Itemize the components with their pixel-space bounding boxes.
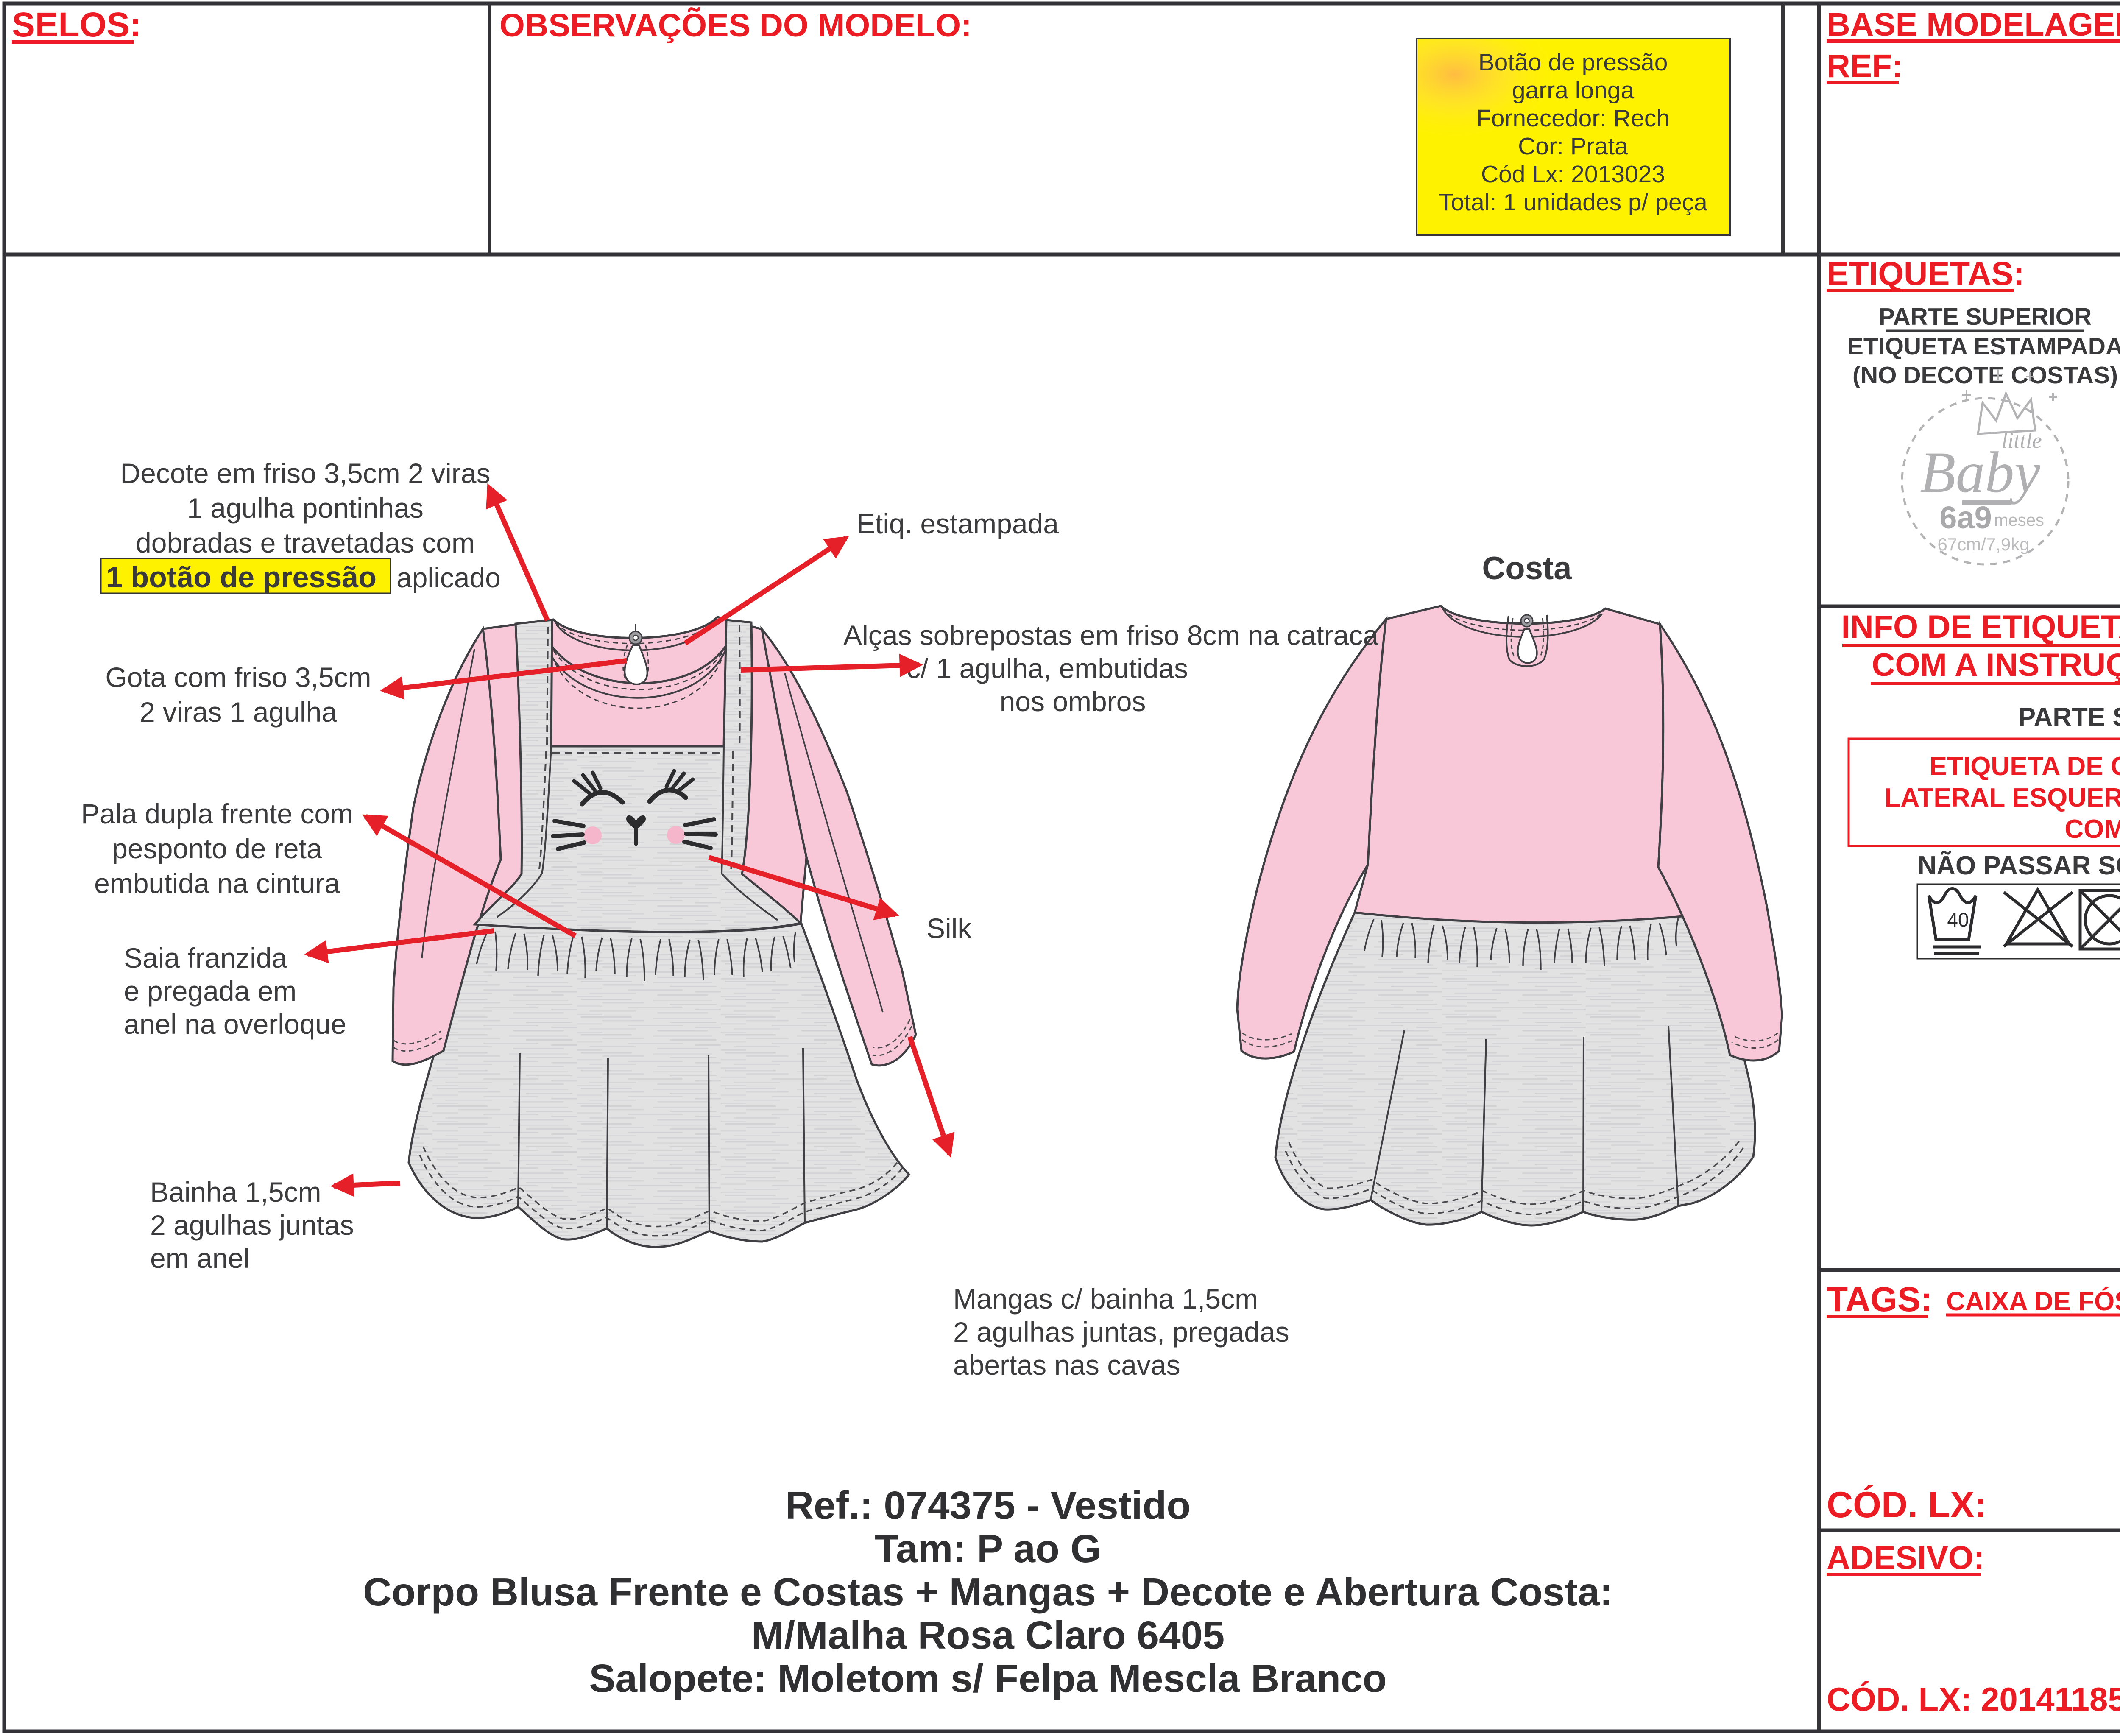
svg-text:Gota com friso 3,5cm: Gota com friso 3,5cm: [105, 661, 371, 693]
svg-text:em anel: em anel: [150, 1242, 250, 1274]
svg-text:67cm/7,9kg: 67cm/7,9kg: [1937, 534, 2029, 554]
svg-text:Decote em friso 3,5cm 2 viras: Decote em friso 3,5cm 2 viras: [120, 458, 491, 489]
svg-text:40: 40: [1947, 909, 1969, 931]
svg-text:NÃO PASSAR SOBRE A ESTAMPA: NÃO PASSAR SOBRE A ESTAMPA: [1917, 851, 2120, 880]
svg-text:CÓD. LX: 20141185: CÓD. LX: 20141185: [1827, 1680, 2120, 1718]
svg-text:Ref.: 074375 - Vestido: Ref.: 074375 - Vestido: [785, 1483, 1191, 1527]
svg-text:Bainha 1,5cm: Bainha 1,5cm: [150, 1176, 321, 1208]
svg-text:ETIQUETAS:: ETIQUETAS:: [1827, 255, 2025, 292]
svg-text:1 agulha pontinhas: 1 agulha pontinhas: [187, 492, 424, 524]
svg-text:2 agulhas juntas, pregadas: 2 agulhas juntas, pregadas: [953, 1316, 1289, 1348]
svg-text:SELOS:: SELOS:: [12, 6, 141, 44]
svg-text:aplicado: aplicado: [396, 562, 501, 593]
svg-text:PARTE SUPERIOR: PARTE SUPERIOR: [1879, 303, 2092, 330]
svg-text:PARTE SUPERIOR: PARTE SUPERIOR: [2018, 703, 2120, 732]
svg-text:meses: meses: [1994, 511, 2044, 530]
svg-text:Salopete: Moletom s/ Felpa Mes: Salopete: Moletom s/ Felpa Mescla Branco: [589, 1656, 1386, 1700]
svg-text:(NO DECOTE COSTAS): (NO DECOTE COSTAS): [1852, 362, 2118, 389]
svg-text:Costa: Costa: [1482, 550, 1572, 586]
svg-text:Saia franzida: Saia franzida: [124, 942, 287, 974]
svg-text:Cód Lx: 2013023: Cód Lx: 2013023: [1481, 161, 1665, 188]
svg-text:INFO DE ETIQUETA DE COMPOSIÇÃO: INFO DE ETIQUETA DE COMPOSIÇÃO: [1841, 609, 2120, 645]
svg-text:Silk: Silk: [926, 913, 972, 944]
svg-text:Etiq. estampada: Etiq. estampada: [856, 508, 1059, 539]
svg-text:OBSERVAÇÕES DO MODELO:: OBSERVAÇÕES DO MODELO:: [499, 7, 972, 44]
svg-text:Fornecedor: Rech: Fornecedor: Rech: [1476, 105, 1670, 132]
svg-text:M/Malha Rosa Claro 6405: M/Malha Rosa Claro 6405: [751, 1613, 1225, 1657]
svg-text:Total: 1 unidades p/ peça: Total: 1 unidades p/ peça: [1439, 189, 1707, 216]
svg-text:Pala dupla frente com: Pala dupla frente com: [81, 798, 353, 829]
svg-text:Alças sobrepostas em friso 8cm: Alças sobrepostas em friso 8cm na catrac…: [843, 620, 1378, 651]
svg-text:6a9: 6a9: [1939, 500, 1992, 535]
svg-text:2 agulhas juntas: 2 agulhas juntas: [150, 1209, 354, 1241]
svg-text:abertas nas cavas: abertas nas cavas: [953, 1349, 1180, 1381]
svg-text:LATERAL ESQUERDA DE QUEM VESTE: LATERAL ESQUERDA DE QUEM VESTE: [1885, 783, 2120, 812]
svg-text:CÓD. LX:: CÓD. LX:: [1827, 1485, 1986, 1525]
svg-text:dobradas e travetadas com: dobradas e travetadas com: [136, 527, 475, 558]
svg-text:c/ 1 agulha, embutidas: c/ 1 agulha, embutidas: [907, 653, 1188, 684]
svg-text:2 viras 1 agulha: 2 viras 1 agulha: [139, 696, 337, 728]
svg-text:COM A INSTRUÇÃO DE LAVAGEM: COM A INSTRUÇÃO DE LAVAGEM: [1872, 647, 2120, 683]
svg-text:1 botão de pressão: 1 botão de pressão: [106, 561, 377, 594]
svg-text:anel na overloque: anel na overloque: [124, 1008, 346, 1040]
svg-text:Cor: Prata: Cor: Prata: [1518, 133, 1628, 160]
svg-text:BASE MODELAGEM:: BASE MODELAGEM:: [1827, 6, 2120, 43]
svg-text:TAGS:: TAGS:: [1827, 1280, 1932, 1319]
svg-text:ETIQUETA DE COMPOSIÇÃO NA: ETIQUETA DE COMPOSIÇÃO NA: [1930, 752, 2120, 781]
svg-text:Baby: Baby: [1920, 440, 2040, 505]
svg-text:COM CNPJ: COM CNPJ: [2064, 815, 2120, 844]
svg-text:ADESIVO:: ADESIVO:: [1827, 1540, 1984, 1576]
svg-text:embutida na cintura: embutida na cintura: [94, 868, 340, 899]
svg-text:Mangas c/ bainha 1,5cm: Mangas c/ bainha 1,5cm: [953, 1283, 1258, 1315]
svg-text:e pregada em: e pregada em: [124, 975, 296, 1007]
svg-text:Corpo Blusa Frente e Costas +: Corpo Blusa Frente e Costas + Mangas + D…: [363, 1570, 1612, 1614]
svg-text:CAIXA DE FÓSFORO:: CAIXA DE FÓSFORO:: [1946, 1287, 2120, 1316]
svg-text:Tam: P ao G: Tam: P ao G: [875, 1527, 1101, 1571]
svg-text:pesponto de reta: pesponto de reta: [112, 833, 322, 864]
svg-text:garra longa: garra longa: [1512, 77, 1635, 104]
svg-text:Botão de pressão: Botão de pressão: [1478, 49, 1668, 76]
svg-text:ETIQUETA ESTAMPADA: ETIQUETA ESTAMPADA: [1847, 333, 2120, 360]
svg-text:nos ombros: nos ombros: [1000, 686, 1146, 717]
svg-text:REF:: REF:: [1827, 48, 1903, 84]
